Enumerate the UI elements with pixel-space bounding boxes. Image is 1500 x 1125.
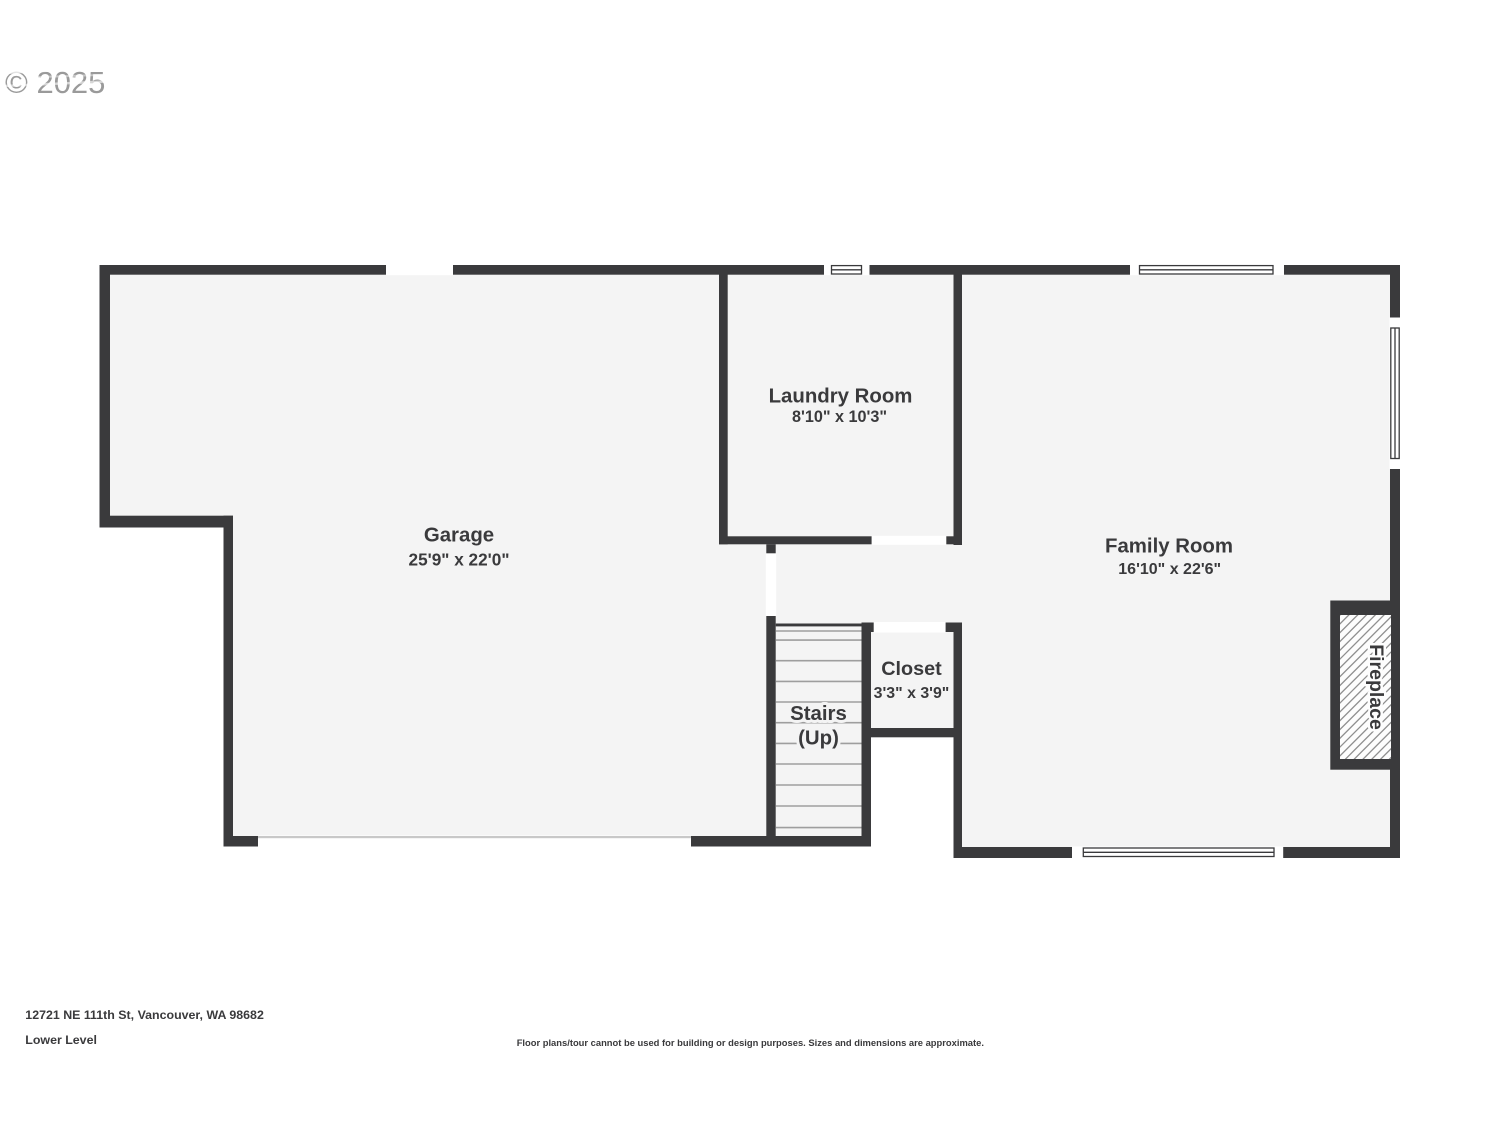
- svg-text:Family Room: Family Room: [1105, 535, 1233, 557]
- svg-text:Laundry Room: Laundry Room: [769, 385, 913, 407]
- svg-text:Closet: Closet: [881, 658, 942, 680]
- svg-text:Lower Level: Lower Level: [25, 1033, 97, 1047]
- svg-text:16'10" x 22'6": 16'10" x 22'6": [1118, 561, 1221, 578]
- svg-text:Garage: Garage: [424, 524, 494, 546]
- svg-text:Fireplace: Fireplace: [1365, 644, 1387, 730]
- svg-text:8'10" x 10'3": 8'10" x 10'3": [792, 408, 887, 426]
- svg-text:25'9" x 22'0": 25'9" x 22'0": [409, 549, 510, 569]
- svg-text:Floor plans/tour cannot be use: Floor plans/tour cannot be used for buil…: [517, 1037, 984, 1048]
- svg-text:3'3" x 3'9": 3'3" x 3'9": [874, 685, 950, 702]
- svg-text:(Up): (Up): [798, 728, 839, 750]
- svg-text:12721 NE 111th St, Vancouver,: 12721 NE 111th St, Vancouver, WA 98682: [25, 1008, 264, 1022]
- svg-text:Stairs: Stairs: [790, 703, 847, 725]
